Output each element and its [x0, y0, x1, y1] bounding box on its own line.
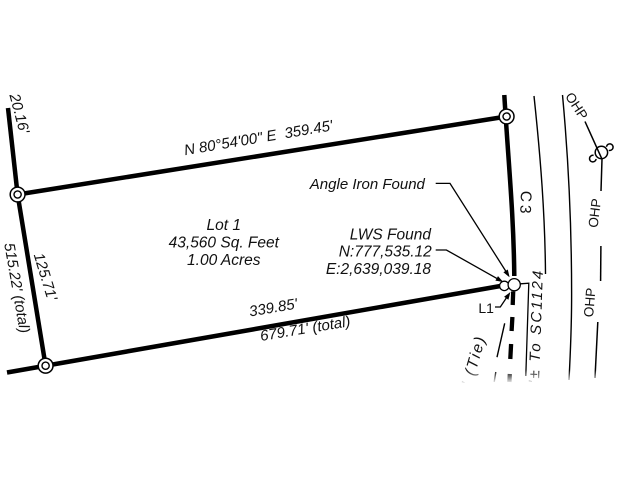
svg-text:43,560 Sq. Feet: 43,560 Sq. Feet	[169, 234, 280, 251]
svg-text:LWS Found: LWS Found	[350, 226, 433, 243]
svg-text:Angle Iron Found: Angle Iron Found	[309, 176, 426, 193]
svg-text:N:777,535.12: N:777,535.12	[339, 244, 432, 261]
svg-text:E:2,639,039.18: E:2,639,039.18	[326, 261, 432, 278]
svg-text:C3: C3	[516, 190, 534, 216]
svg-text:1.00 Acres: 1.00 Acres	[187, 252, 261, 269]
svg-text:Lot 1: Lot 1	[207, 217, 241, 234]
svg-text:L1: L1	[478, 300, 494, 316]
svg-text:OHP: OHP	[581, 287, 598, 317]
